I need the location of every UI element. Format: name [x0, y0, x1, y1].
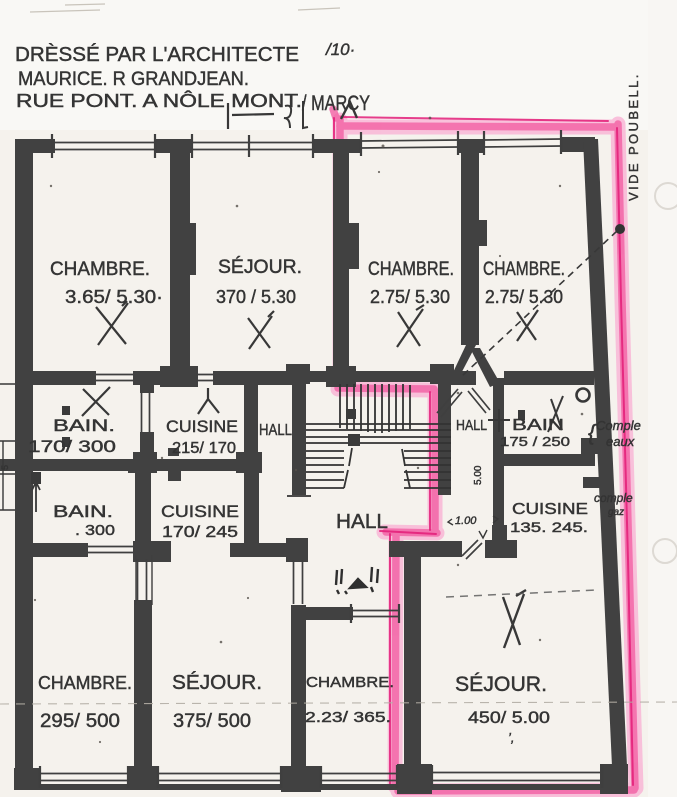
- svg-text:HALL: HALL: [336, 511, 388, 533]
- svg-text:SÉJOUR.: SÉJOUR.: [218, 257, 302, 278]
- svg-text:BAIN.: BAIN.: [53, 416, 115, 435]
- svg-text:. 300: . 300: [75, 522, 115, 539]
- svg-text:2.23/ 365.: 2.23/ 365.: [305, 709, 391, 726]
- svg-text:2.75/ 5.30: 2.75/ 5.30: [485, 287, 563, 307]
- svg-text:1.00: 1.00: [455, 515, 477, 527]
- svg-text:HALL: HALL: [259, 422, 292, 439]
- svg-text:MAURICE. R GRANDJEAN.: MAURICE. R GRANDJEAN.: [18, 69, 249, 90]
- svg-text:CHAMBRE.: CHAMBRE.: [306, 674, 394, 691]
- svg-text:CUISINE: CUISINE: [166, 417, 238, 436]
- svg-text:/ MARCY: / MARCY: [302, 92, 370, 115]
- svg-text:gaz: gaz: [608, 507, 624, 518]
- svg-text:3.65/ 5.30·: 3.65/ 5.30·: [65, 287, 163, 307]
- svg-text:’,: ’,: [508, 730, 515, 745]
- svg-text:295/ 500: 295/ 500: [40, 711, 120, 732]
- svg-text:HALL: HALL: [456, 417, 487, 434]
- svg-text:SÉJOUR.: SÉJOUR.: [455, 673, 547, 696]
- svg-text:DRÈSSÉ PAR L'ARCHITECTE: DRÈSSÉ PAR L'ARCHITECTE: [15, 43, 299, 66]
- svg-text:comple: comple: [594, 491, 633, 505]
- svg-text:170/ 300: 170/ 300: [28, 437, 116, 456]
- svg-text:CHAMBRE.: CHAMBRE.: [368, 259, 454, 280]
- svg-text:BAIN.: BAIN.: [53, 502, 113, 521]
- svg-text:215/ 170: 215/ 170: [172, 440, 236, 457]
- svg-text:450/ 5.00: 450/ 5.00: [468, 708, 550, 727]
- svg-text:CHAMBRE.: CHAMBRE.: [50, 259, 150, 280]
- svg-text:RUE PONT. A NÔLE MONT.: RUE PONT. A NÔLE MONT.: [16, 90, 302, 111]
- svg-text:5: 5: [0, 465, 10, 470]
- svg-text:eaux: eaux: [606, 434, 635, 449]
- svg-text:CHAMBRE.: CHAMBRE.: [38, 673, 132, 693]
- svg-text:CUISINE: CUISINE: [512, 501, 588, 518]
- svg-text:BAIN: BAIN: [512, 417, 564, 434]
- svg-text:175 / 250: 175 / 250: [500, 434, 570, 449]
- svg-text:375/ 500: 375/ 500: [173, 711, 251, 732]
- svg-text:Comple: Comple: [596, 418, 641, 433]
- svg-text:135. 245.: 135. 245.: [510, 519, 588, 535]
- svg-text:5.00: 5.00: [473, 465, 484, 485]
- svg-text:170/ 245: 170/ 245: [162, 524, 238, 541]
- svg-text:/10·: /10·: [325, 40, 355, 59]
- svg-text:CHAMBRE.: CHAMBRE.: [483, 259, 565, 280]
- svg-text:2.75/ 5.30: 2.75/ 5.30: [370, 287, 450, 307]
- svg-text:SÉJOUR.: SÉJOUR.: [172, 671, 262, 694]
- svg-text:CUISINE: CUISINE: [161, 502, 239, 521]
- svg-text:370 / 5.30: 370 / 5.30: [216, 287, 296, 307]
- svg-text:VIDE POUBELL.: VIDE POUBELL.: [626, 72, 641, 201]
